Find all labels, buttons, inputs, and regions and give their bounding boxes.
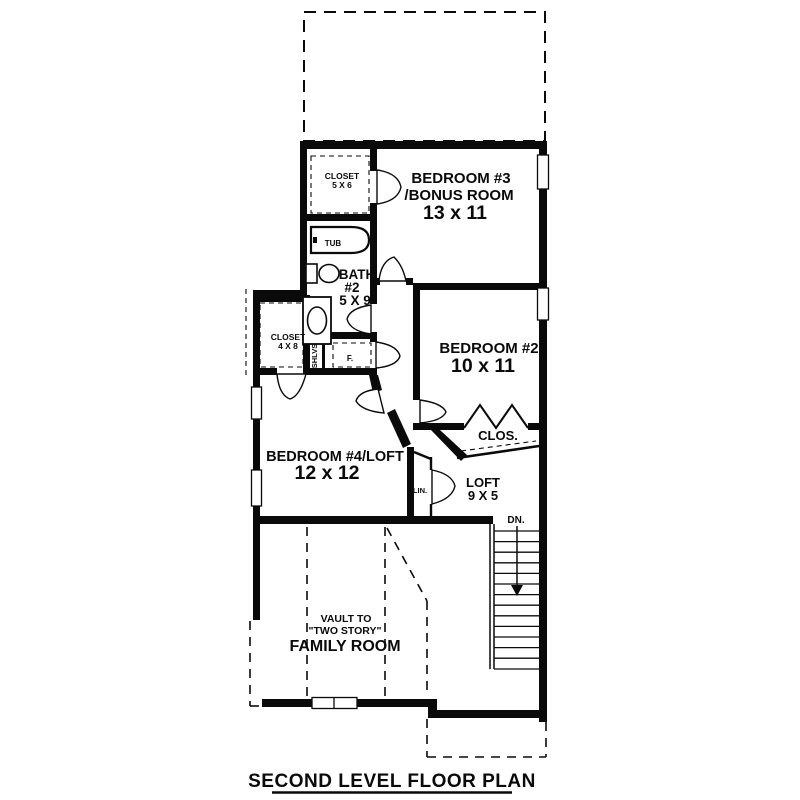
vault-outline <box>307 527 427 697</box>
clos-label: CLOS. <box>478 428 518 443</box>
bedroom4-dims: 12 x 12 <box>294 462 359 484</box>
door-closet56 <box>377 170 401 204</box>
linen-label: LIN. <box>413 486 427 495</box>
furnace-label: F. <box>347 354 353 363</box>
wall-bed2-west <box>413 283 420 400</box>
vault-line1: VAULT TO <box>321 613 372 625</box>
wall-bed3-south-stub-b <box>406 278 413 285</box>
tub-label: TUB <box>325 239 342 248</box>
toilet-bowl <box>319 265 339 283</box>
wall-closet56-bottom <box>300 214 377 221</box>
door-bedroom2 <box>420 400 446 423</box>
down-label: DN. <box>507 515 524 526</box>
stairs <box>490 524 539 669</box>
vault-dash-diagonal <box>387 528 427 601</box>
wall-bed4-diagonal <box>387 409 411 448</box>
toilet-tank <box>306 264 317 283</box>
loft-dims: 9 X 5 <box>468 488 498 503</box>
wall-bed4-south <box>256 516 493 524</box>
sink <box>308 307 327 334</box>
bedroom3-dims: 13 x 11 <box>423 202 487 224</box>
roof-outline-upper <box>304 12 545 141</box>
wall-bed2-north <box>413 283 539 290</box>
door-furnace <box>376 342 400 368</box>
door-closet48 <box>277 374 306 399</box>
page-title: SECOND LEVEL FLOOR PLAN <box>248 771 536 792</box>
vault-line2: "TWO STORY" <box>309 625 382 637</box>
bedroom2-dims: 10 x 11 <box>451 355 515 377</box>
bedroom3-label: BEDROOM #3 <box>411 170 510 187</box>
window-bedroom2 <box>538 288 549 320</box>
door-linen <box>432 470 455 504</box>
door-bedroom4 <box>356 389 384 413</box>
wall-closet48-bottom-stub <box>253 368 277 375</box>
bath-dims: 5 X 9 <box>339 293 371 308</box>
wall-bed2-south-b <box>528 423 539 430</box>
window-bedroom4-upper <box>252 387 262 419</box>
closet48-dims: 4 X 8 <box>278 341 298 351</box>
wall-closet56-east-a <box>370 141 377 171</box>
door-bedroom3 <box>379 257 406 281</box>
wall-bottom-right <box>428 710 547 718</box>
wall-linen-north <box>414 452 431 459</box>
shelves-label: SHLVS <box>310 344 319 368</box>
window-bedroom4-lower <box>252 470 262 506</box>
wall-left-lower <box>253 290 260 620</box>
bifold-doors-clos <box>464 405 528 428</box>
floor-plan-page: BEDROOM #3 /BONUS ROOM 13 x 11 BEDROOM #… <box>0 0 800 800</box>
floor-plan-drawing: BEDROOM #3 /BONUS ROOM 13 x 11 BEDROOM #… <box>0 0 800 800</box>
window-bedroom3 <box>538 155 549 189</box>
wall-bed2-south-a <box>413 423 464 430</box>
wall-linen-west <box>407 447 414 516</box>
wall-top <box>300 141 547 149</box>
door-bath2 <box>347 305 371 334</box>
wall-right <box>539 141 547 722</box>
wall-clos-slant <box>457 446 539 458</box>
tub-faucet <box>313 237 317 243</box>
wall-closet48-top <box>253 295 310 302</box>
closet56-dims: 5 X 6 <box>332 180 352 190</box>
family-room-label: FAMILY ROOM <box>289 638 400 655</box>
